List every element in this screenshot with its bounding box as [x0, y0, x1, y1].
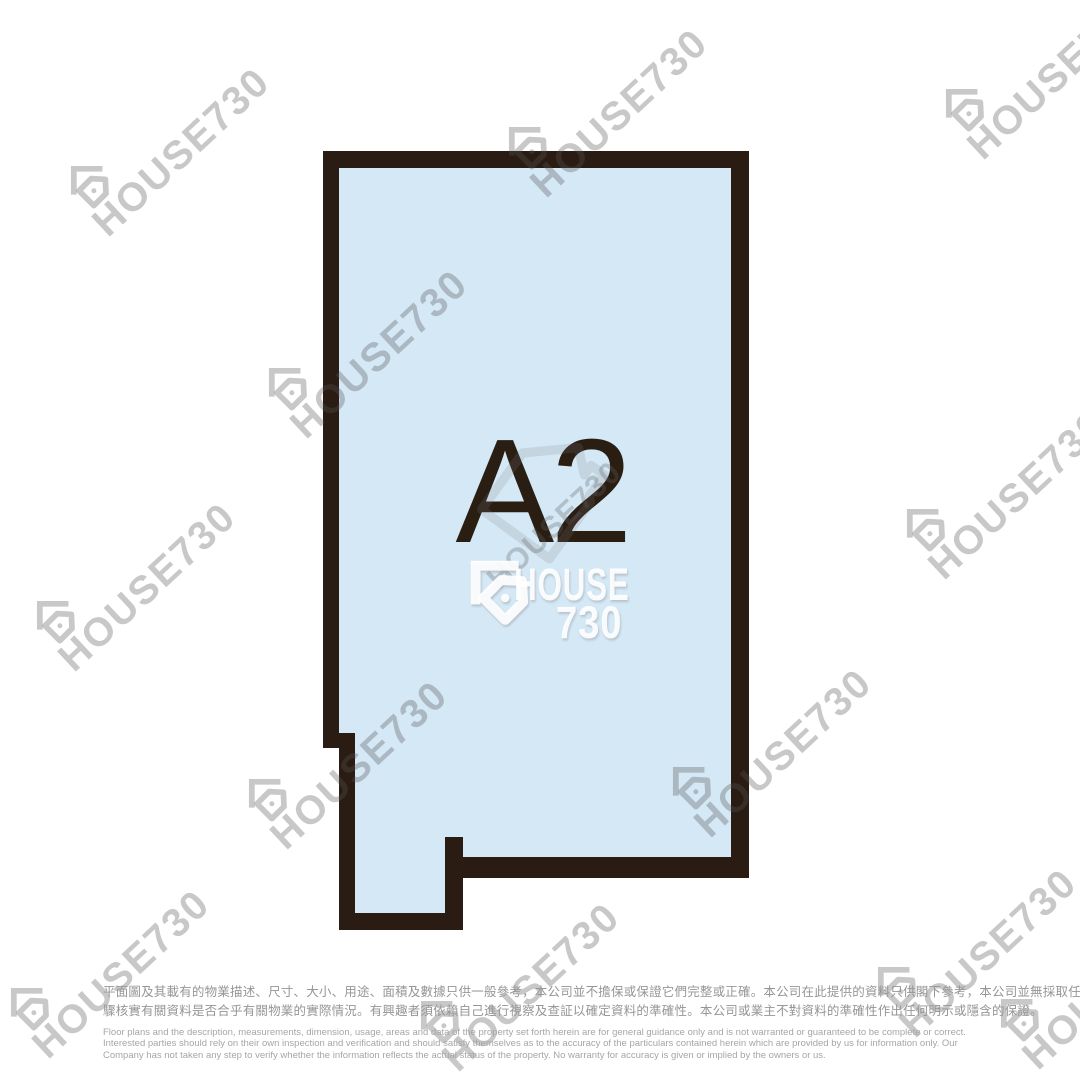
- house730-center-logo-watermark: HOUSE 730: [468, 544, 643, 644]
- disclaimer-zh-line-1: 平面圖及其載有的物業描述、尺寸、大小、用途、面積及數據只供一般參考，本公司並不擔…: [103, 983, 1063, 1002]
- disclaimer-en-line-1: Floor plans and the description, measure…: [103, 1027, 1063, 1038]
- disclaimer-english-block: Floor plans and the description, measure…: [103, 1027, 1063, 1061]
- disclaimer-block: 平面圖及其載有的物業描述、尺寸、大小、用途、面積及數據只供一般參考，本公司並不擔…: [103, 983, 1063, 1061]
- center-logo-brand-number: 730: [556, 600, 622, 645]
- disclaimer-en-line-2: Interested parties should rely on their …: [103, 1038, 1063, 1049]
- disclaimer-zh-line-2: 驟核實有關資料是否合乎有關物業的實際情況。有興趣者須依賴自己進行視察及查証以確定…: [103, 1002, 1063, 1021]
- disclaimer-en-line-3: Company has not taken any step to verify…: [103, 1050, 1063, 1061]
- floor-plan-page: { "floor_plan": { "unit_label": "A2" }, …: [0, 0, 1080, 1080]
